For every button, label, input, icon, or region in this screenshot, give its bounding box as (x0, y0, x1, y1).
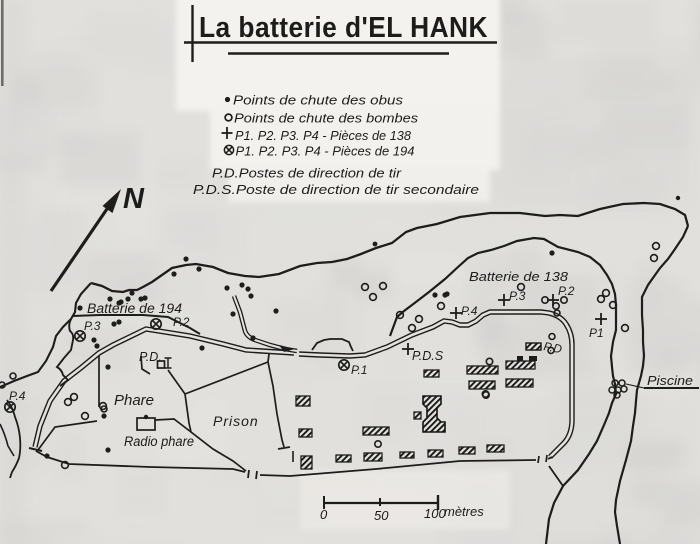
svg-text:P1: P1 (589, 326, 604, 340)
svg-text:Points de chute des obus: Points de chute des obus (233, 93, 404, 108)
svg-text:P.D.Postes de direction de tir: P.D.Postes de direction de tir (212, 166, 402, 181)
svg-text:Points de chute des bombes: Points de chute des bombes (234, 111, 419, 126)
svg-text:N: N (123, 183, 145, 215)
svg-text:0: 0 (320, 507, 328, 522)
svg-text:P1. P2. P3. P4 - Pièces de 194: P1. P2. P3. P4 - Pièces de 194 (236, 144, 415, 159)
svg-text:P.4: P.4 (461, 304, 478, 318)
svg-text:Radio phare: Radio phare (124, 434, 194, 449)
svg-text:P.D.S.Poste de direction de ti: P.D.S.Poste de direction de tir secondai… (193, 182, 479, 197)
svg-text:P.3: P.3 (84, 319, 101, 333)
svg-text:mètres: mètres (444, 504, 484, 519)
svg-text:P.3: P.3 (509, 289, 526, 303)
svg-text:P.2: P.2 (558, 284, 575, 298)
svg-text:Batterie de 138: Batterie de 138 (469, 269, 569, 284)
svg-text:P.1: P.1 (351, 363, 367, 377)
svg-text:P.D.S: P.D.S (412, 349, 444, 363)
svg-text:Batterie de 194: Batterie de 194 (87, 301, 182, 316)
svg-text:P1. P2. P3. P4 - Pièces de 138: P1. P2. P3. P4 - Pièces de 138 (235, 128, 412, 143)
svg-text:Phare: Phare (114, 392, 154, 409)
svg-text:P.4: P.4 (9, 389, 26, 403)
svg-text:50: 50 (374, 508, 389, 523)
svg-text:P.2: P.2 (173, 315, 190, 329)
svg-text:La batterie d'EL HANK: La batterie d'EL HANK (199, 12, 488, 44)
svg-text:Prison: Prison (213, 413, 259, 429)
svg-text:Piscine: Piscine (647, 373, 693, 388)
